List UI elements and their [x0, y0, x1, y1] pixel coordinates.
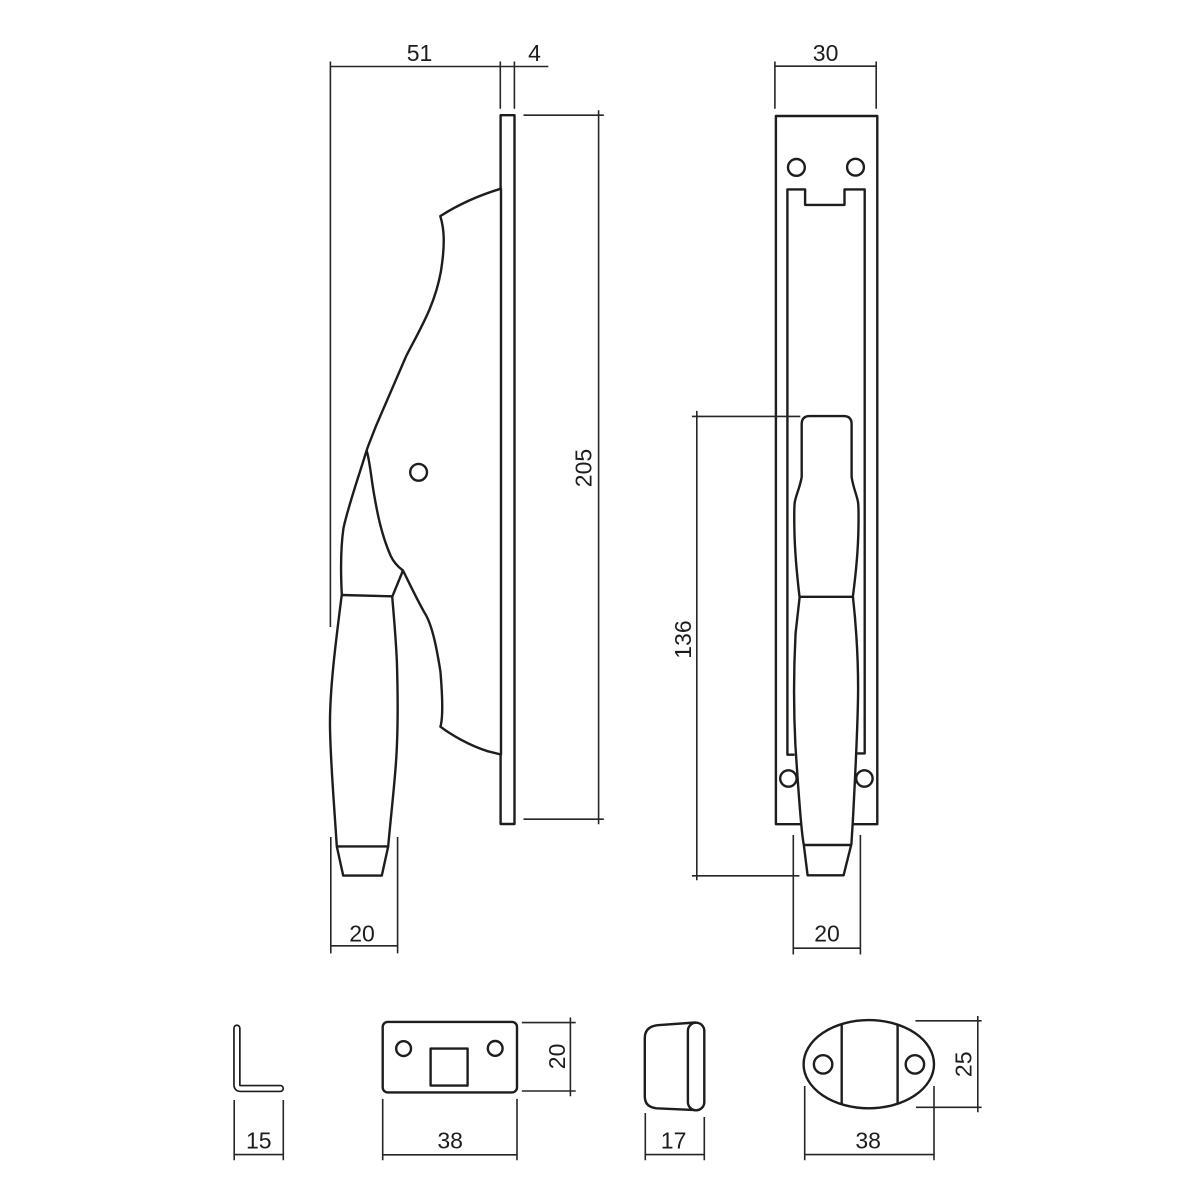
svg-text:38: 38 — [437, 1128, 463, 1154]
svg-text:25: 25 — [951, 1052, 977, 1078]
svg-text:20: 20 — [349, 921, 375, 947]
svg-text:30: 30 — [813, 40, 839, 66]
svg-text:38: 38 — [855, 1128, 881, 1154]
svg-text:20: 20 — [544, 1044, 570, 1070]
svg-text:136: 136 — [670, 620, 696, 658]
svg-text:15: 15 — [246, 1128, 272, 1154]
svg-text:20: 20 — [814, 921, 840, 947]
svg-text:17: 17 — [661, 1128, 687, 1154]
svg-text:205: 205 — [571, 449, 597, 487]
svg-text:51: 51 — [407, 40, 433, 66]
svg-text:4: 4 — [528, 40, 541, 66]
